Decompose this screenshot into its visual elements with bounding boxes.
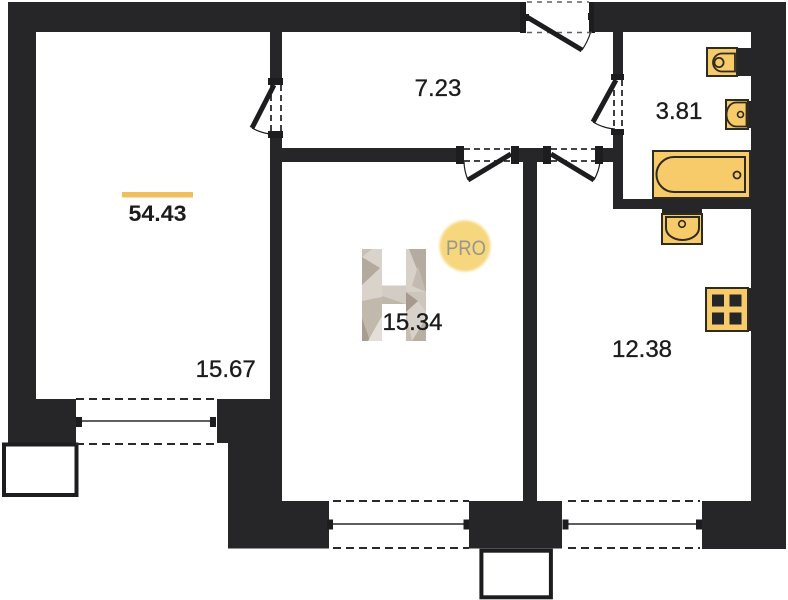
svg-text:PRO: PRO <box>446 237 486 260</box>
svg-text:3.81: 3.81 <box>656 98 703 125</box>
svg-text:54.43: 54.43 <box>129 201 187 226</box>
svg-text:7.23: 7.23 <box>415 75 462 102</box>
svg-text:12.38: 12.38 <box>612 336 672 363</box>
svg-text:15.67: 15.67 <box>196 356 256 383</box>
svg-text:15.34: 15.34 <box>382 309 442 336</box>
